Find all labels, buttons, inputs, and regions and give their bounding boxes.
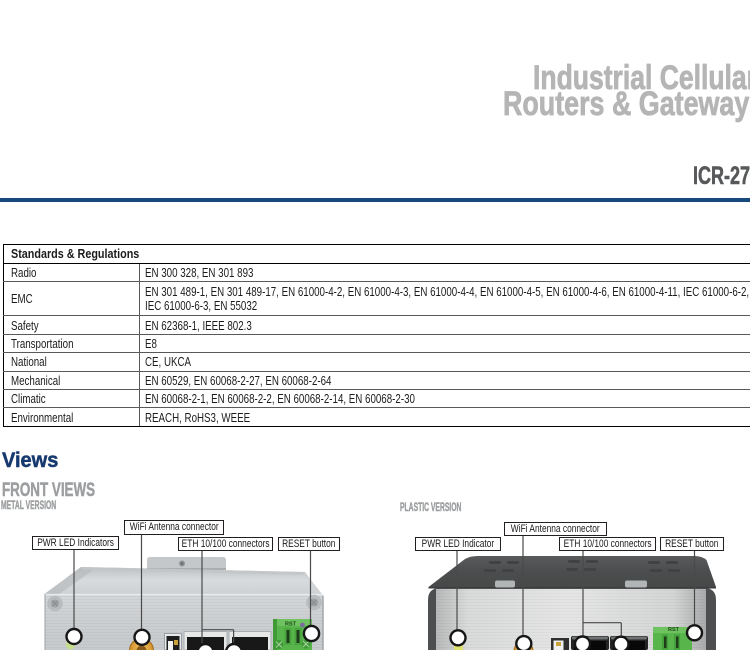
svg-text:RST: RST: [285, 622, 296, 628]
svg-text:RST: RST: [668, 627, 679, 633]
